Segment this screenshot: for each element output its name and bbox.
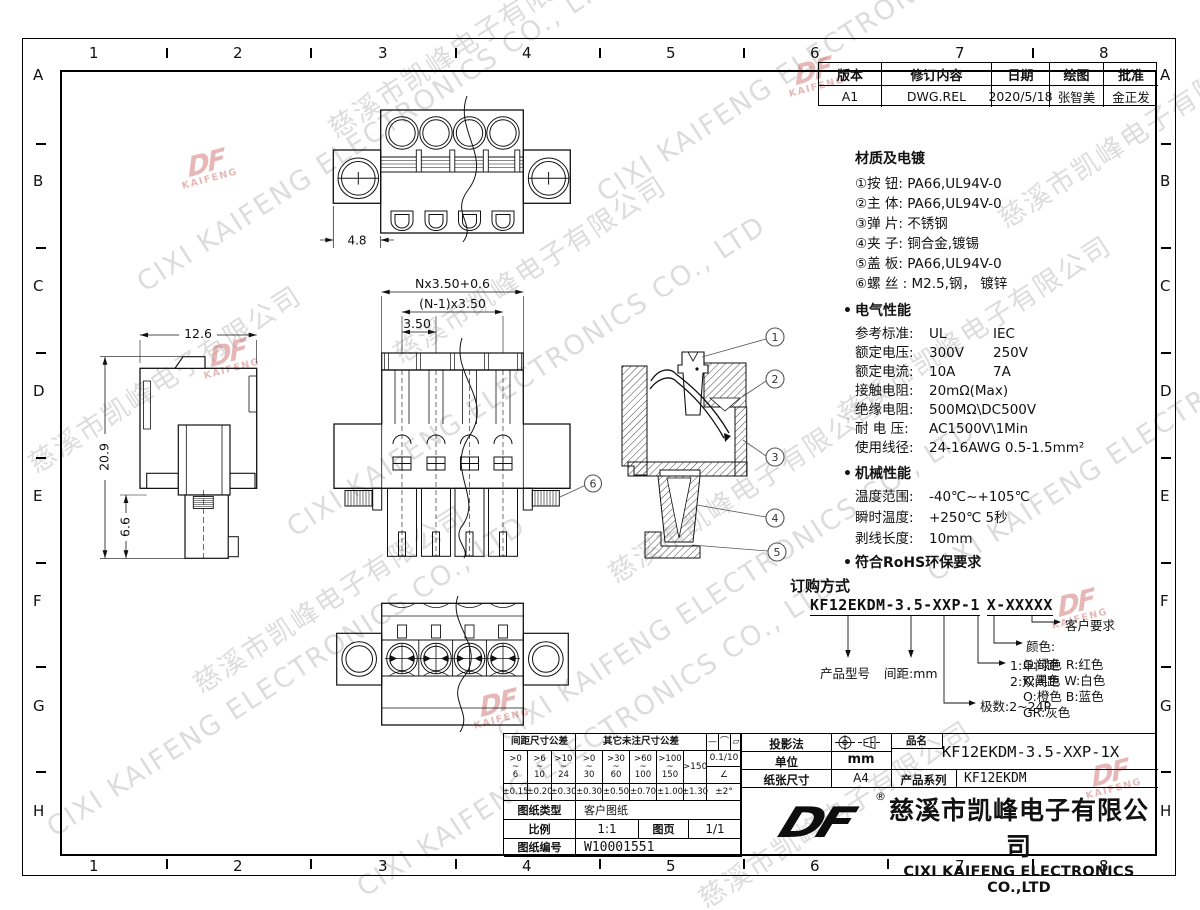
grid-row-label: C <box>33 277 43 295</box>
symbol-straightness: — <box>707 734 719 751</box>
revision-table: 版本 修订内容 日期 绘图 批准 A1 DWG.REL 2020/5/18 张智… <box>818 62 1157 106</box>
electrical-row: 耐 电 压:AC1500V\1Min <box>855 417 1028 437</box>
view-top: 4.8 <box>315 90 615 260</box>
grid-col-label: 6 <box>810 857 820 875</box>
grid-tick <box>455 48 457 58</box>
tolerance-value: ±0.20 <box>528 784 552 801</box>
material-item: ①按 钮: PA66,UL94V-0 <box>855 172 1002 192</box>
scale-value: 1:1 <box>576 820 639 839</box>
material-title: 材质及电镀 <box>855 148 925 168</box>
grid-col-label: 5 <box>666 857 676 875</box>
grid-tick <box>36 352 46 354</box>
mechanical-row: 瞬时温度:+250℃ 5秒 <box>855 506 1008 526</box>
electrical-row: 接触电阻:20mΩ(Max) <box>855 379 1008 399</box>
callout-4: 4 <box>772 512 779 525</box>
grid-tick <box>455 859 457 869</box>
company-name-en: CIXI KAIFENG ELECTRONICS CO.,LTD <box>884 864 1154 896</box>
grid-col-label: 4 <box>522 44 532 62</box>
unit-value: mm <box>831 752 891 767</box>
tolerance-range: >100~150 <box>657 751 684 784</box>
company-names: 慈溪市凯峰电子有限公司 CIXI KAIFENG ELECTRONICS CO.… <box>884 791 1154 896</box>
grid-row-label: B <box>1160 172 1170 190</box>
dim-side-width: 12.6 <box>184 326 212 341</box>
spec-column: 材质及电镀 ①按 钮: PA66,UL94V-0 ②主 体: PA66,UL94… <box>843 140 1158 590</box>
grid-tick <box>166 48 168 58</box>
ordering-label-customer: 客户要求 <box>1065 615 1115 634</box>
grid-tick <box>1161 143 1171 145</box>
part-name-value: KF12EKDM-3.5-XXP-1X <box>891 734 1158 769</box>
tolerance-range: >30~60 <box>603 751 630 784</box>
material-item: ③弹 片: 不锈钢 <box>855 212 948 232</box>
doc-type-label: 图纸类型 <box>504 801 576 820</box>
tolerance-range: >60~100 <box>630 751 657 784</box>
tolerance-range: >0~6 <box>504 751 528 784</box>
tolerance-value: ±0.15 <box>504 784 528 801</box>
tolerance-range: >0~30 <box>576 751 603 784</box>
view-front: Nx3.50+0.6 (N-1)x3.50 3.50 <box>330 275 620 570</box>
grid-row-label: E <box>33 487 42 505</box>
grid-tick <box>36 247 46 249</box>
revision-header: 版本 <box>819 63 881 85</box>
grid-tick <box>599 859 601 869</box>
doc-type-value: 客户图纸 <box>576 801 742 820</box>
tolerance-value: ±0.70 <box>630 784 657 801</box>
company-logo-df: DF <box>773 798 858 847</box>
tolerance-range: >10~24 <box>552 751 576 784</box>
callout-2: 2 <box>772 373 779 386</box>
grid-row-label: D <box>1160 382 1172 400</box>
grid-row-label: F <box>1160 592 1169 610</box>
grid-tick <box>166 859 168 869</box>
dim-top-width: 4.8 <box>347 234 366 248</box>
grid-col-label: 2 <box>233 857 243 875</box>
series-label: 产品系列 <box>891 772 956 788</box>
flatness-value: 0.1/10 <box>707 751 742 767</box>
grid-tick <box>1161 457 1171 459</box>
page-value: 1/1 <box>689 820 742 839</box>
grid-tick <box>36 666 46 668</box>
grid-row-label: G <box>33 697 45 715</box>
scale-label: 比例 <box>504 820 576 839</box>
drawing-sheet: 慈溪市凯峰电子有限公司 CIXI KAIFENG ELECTRONICS CO.… <box>0 0 1200 910</box>
grid-row-label: B <box>33 172 43 190</box>
grid-tick <box>1161 247 1171 249</box>
tolerance-value: ±0.30 <box>552 784 576 801</box>
grid-row-label: D <box>33 382 45 400</box>
revision-cell: 金正发 <box>1103 85 1158 107</box>
projection-label: 投影法 <box>742 736 831 752</box>
grid-row-label: A <box>1160 66 1170 84</box>
callout-5: 5 <box>774 546 781 559</box>
grid-row-label: A <box>33 66 43 84</box>
grid-tick <box>743 859 745 869</box>
tolerance-value: ±0.50 <box>603 784 630 801</box>
material-item: ⑤盖 板: PA66,UL94V-0 <box>855 252 1002 272</box>
grid-tick <box>36 143 46 145</box>
doc-no-label: 图纸编号 <box>504 839 576 857</box>
grid-tick <box>1161 352 1171 354</box>
grid-col-label: 6 <box>810 44 820 62</box>
tolerance-header-pitch: 间距尺寸公差 <box>504 734 576 751</box>
grid-col-label: 1 <box>89 44 99 62</box>
symbol-arc: ⌒ <box>719 734 731 751</box>
tolerance-value: ±1.30 <box>684 784 707 801</box>
grid-row-label: C <box>1160 277 1170 295</box>
grid-col-label: 1 <box>89 857 99 875</box>
title-block: 投影法 单位 mm 纸张尺寸 A4 品名 KF12EKDM-3.5-XXP-1X… <box>741 733 1157 856</box>
grid-tick <box>310 859 312 869</box>
unit-label: 单位 <box>742 754 831 770</box>
rohs-note: •符合RoHS环保要求 <box>843 552 981 572</box>
dim-pitch: 3.50 <box>403 316 431 331</box>
grid-col-label: 3 <box>378 857 388 875</box>
page-label: 图页 <box>639 820 689 839</box>
revision-cell: 2020/5/18 <box>991 85 1049 107</box>
grid-tick <box>1032 48 1034 58</box>
projection-symbol <box>831 734 891 751</box>
callout-3: 3 <box>772 451 779 464</box>
grid-col-label: 3 <box>378 44 388 62</box>
mechanical-title: •机械性能 <box>843 463 911 483</box>
company-logo: DF <box>754 798 876 847</box>
revision-header: 批准 <box>1103 63 1158 85</box>
grid-row-label: H <box>1160 802 1171 820</box>
grid-tick <box>36 457 46 459</box>
grid-tick <box>36 771 46 773</box>
grid-col-label: 4 <box>522 857 532 875</box>
grid-tick <box>599 48 601 58</box>
angle-tolerance: ±2° <box>707 784 742 801</box>
ordering-label-product: 产品型号 <box>820 663 870 682</box>
callout-6: 6 <box>590 478 597 491</box>
material-item: ⑥螺 丝 : M2.5,钢， 镀锌 <box>855 272 1007 292</box>
ordering-label-pitch: 间距:mm <box>884 663 938 682</box>
material-item: ②主 体: PA66,UL94V-0 <box>855 192 1002 212</box>
revision-cell: 张智美 <box>1049 85 1103 107</box>
grid-col-label: 8 <box>1099 44 1109 62</box>
series-value: KF12EKDM <box>964 771 1027 786</box>
dim-pitch-total: Nx3.50+0.6 <box>415 276 490 291</box>
ordering-label-color-title: 颜色: <box>1026 636 1055 655</box>
grid-tick <box>1161 771 1171 773</box>
revision-header: 日期 <box>991 63 1049 85</box>
view-side: 12.6 20.9 6.6 <box>85 315 300 570</box>
revision-cell: A1 <box>819 85 881 107</box>
tolerance-value: ±0.30 <box>576 784 603 801</box>
angle-symbol: ∠ <box>707 767 742 784</box>
mechanical-row: 剥线长度:10mm <box>855 527 972 547</box>
ordering-title: 订购方式 <box>790 575 850 596</box>
tolerance-range: >6~10 <box>528 751 552 784</box>
grid-row-label: E <box>1160 487 1169 505</box>
grid-row-label: H <box>33 802 44 820</box>
electrical-row: 使用线径:24-16AWG 0.5-1.5mm² <box>855 436 1084 456</box>
paper-size-value: A4 <box>831 771 891 785</box>
electrical-row: 额定电流:10A7A <box>855 360 1011 380</box>
revision-header: 修订内容 <box>881 63 991 85</box>
tolerance-range-150: >150 <box>684 751 707 784</box>
tolerance-value: ±1.00 <box>657 784 684 801</box>
electrical-title: •电气性能 <box>843 300 911 320</box>
grid-col-label: 5 <box>666 44 676 62</box>
electrical-row: 额定电压:300V250V <box>855 341 1028 361</box>
electrical-row: 绝缘电阻:500MΩ\DC500V <box>855 398 1036 418</box>
electrical-row: 参考标准:ULIEC <box>855 322 1015 342</box>
ordering-color-option: GR:灰色 <box>1023 702 1070 721</box>
view-section: 1 2 3 4 5 <box>600 322 795 567</box>
grid-row-label: F <box>33 592 42 610</box>
grid-tick <box>36 562 46 564</box>
dim-pitch-n1: (N-1)x3.50 <box>419 296 486 311</box>
company-name-cn: 慈溪市凯峰电子有限公司 <box>884 791 1154 863</box>
paper-size-label: 纸张尺寸 <box>742 772 831 788</box>
mechanical-row: 温度范围:-40℃~+105℃ <box>855 485 1030 505</box>
grid-col-label: 2 <box>233 44 243 62</box>
dim-side-height: 20.9 <box>97 443 112 471</box>
grid-col-label: 7 <box>955 44 965 62</box>
tolerance-table: 间距尺寸公差 其它未注尺寸公差 — ⌒ ▱ >0~6 >6~10 >10~24 … <box>503 733 741 856</box>
grid-tick <box>1161 562 1171 564</box>
material-item: ④夹 子: 铜合金,镀锡 <box>855 232 979 252</box>
grid-tick <box>310 48 312 58</box>
doc-no-value: W10001551 <box>576 839 742 857</box>
grid-tick <box>743 48 745 58</box>
tolerance-header-other: 其它未注尺寸公差 <box>576 734 707 751</box>
dim-side-lower: 6.6 <box>118 517 133 537</box>
grid-tick <box>1161 666 1171 668</box>
grid-row-label: G <box>1160 697 1172 715</box>
revision-cell: DWG.REL <box>881 85 991 107</box>
view-bottom <box>330 588 620 738</box>
callout-1: 1 <box>772 331 779 344</box>
revision-header: 绘图 <box>1049 63 1103 85</box>
